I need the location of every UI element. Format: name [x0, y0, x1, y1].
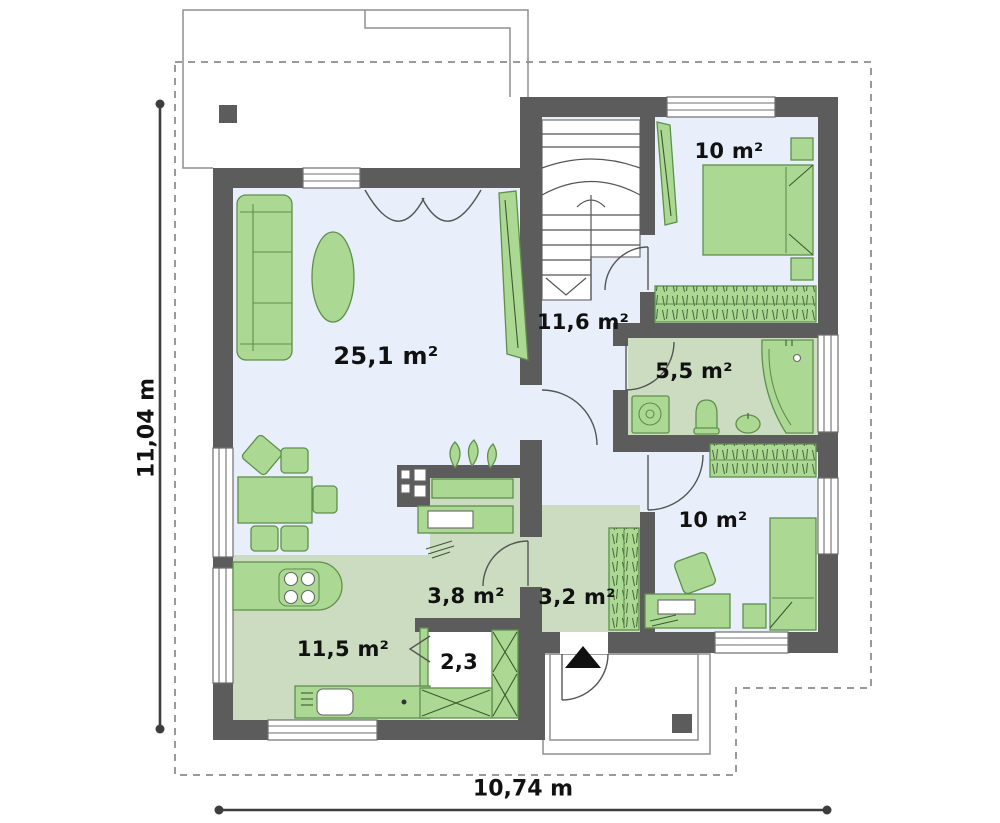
window-kitchen-left [213, 568, 233, 683]
dimension-width-label: 10,74 m [473, 777, 573, 802]
kitchen-sink [317, 689, 353, 715]
room-label-bathroom: 5,5 m² [655, 359, 732, 383]
desk [645, 594, 730, 628]
room-label-bedroom-bottom: 10 m² [678, 508, 747, 532]
dimension-height-label: 11,04 m [135, 378, 160, 478]
porch-outline [543, 654, 710, 754]
dining-chair [313, 486, 337, 513]
dining-chair [251, 526, 278, 551]
room-label-stair-hall: 11,6 m² [537, 310, 629, 334]
window-living-top [303, 168, 360, 188]
kitchen-sink-counter [295, 686, 430, 718]
washing-machine [632, 396, 669, 433]
single-bed [770, 518, 816, 630]
wardrobe [655, 286, 816, 322]
terrace-column [219, 105, 237, 123]
dining-chair [281, 448, 308, 473]
window-bathroom-right [818, 335, 838, 432]
double-bed [703, 165, 813, 255]
window-dining-left [213, 448, 233, 557]
hall-wardrobe [609, 528, 639, 630]
room-label-office: 3,8 m² [427, 584, 504, 608]
sofa [237, 195, 292, 360]
room-label-entry-hall: 3,2 m² [538, 585, 615, 609]
window-kitchen-bottom [268, 720, 377, 740]
room-label-pantry: 2,3 [440, 650, 478, 674]
nightstand [791, 258, 813, 280]
terrace-outline [183, 10, 528, 168]
dining-chair [281, 526, 308, 551]
window-bedroom2-right [818, 478, 838, 554]
room-label-bedroom-top: 10 m² [694, 139, 763, 163]
coffee-table [312, 232, 354, 322]
porch-column [672, 714, 692, 733]
wardrobe [710, 444, 816, 477]
window-bedroom-top [667, 97, 775, 117]
nightstand [791, 138, 813, 160]
kitchen-hob-counter [233, 562, 342, 610]
toilet [694, 400, 719, 434]
window-bedroom-bottom [715, 632, 788, 653]
nightstand [743, 604, 766, 628]
room-label-kitchen: 11,5 m² [297, 637, 389, 661]
floor-plan: 25,1 m² 11,6 m² 10 m² 5,5 m² 10 m² 3,8 m… [0, 0, 1000, 823]
dimension-line-bottom [215, 806, 832, 815]
room-label-living: 25,1 m² [333, 342, 438, 370]
dining-table [238, 477, 312, 523]
